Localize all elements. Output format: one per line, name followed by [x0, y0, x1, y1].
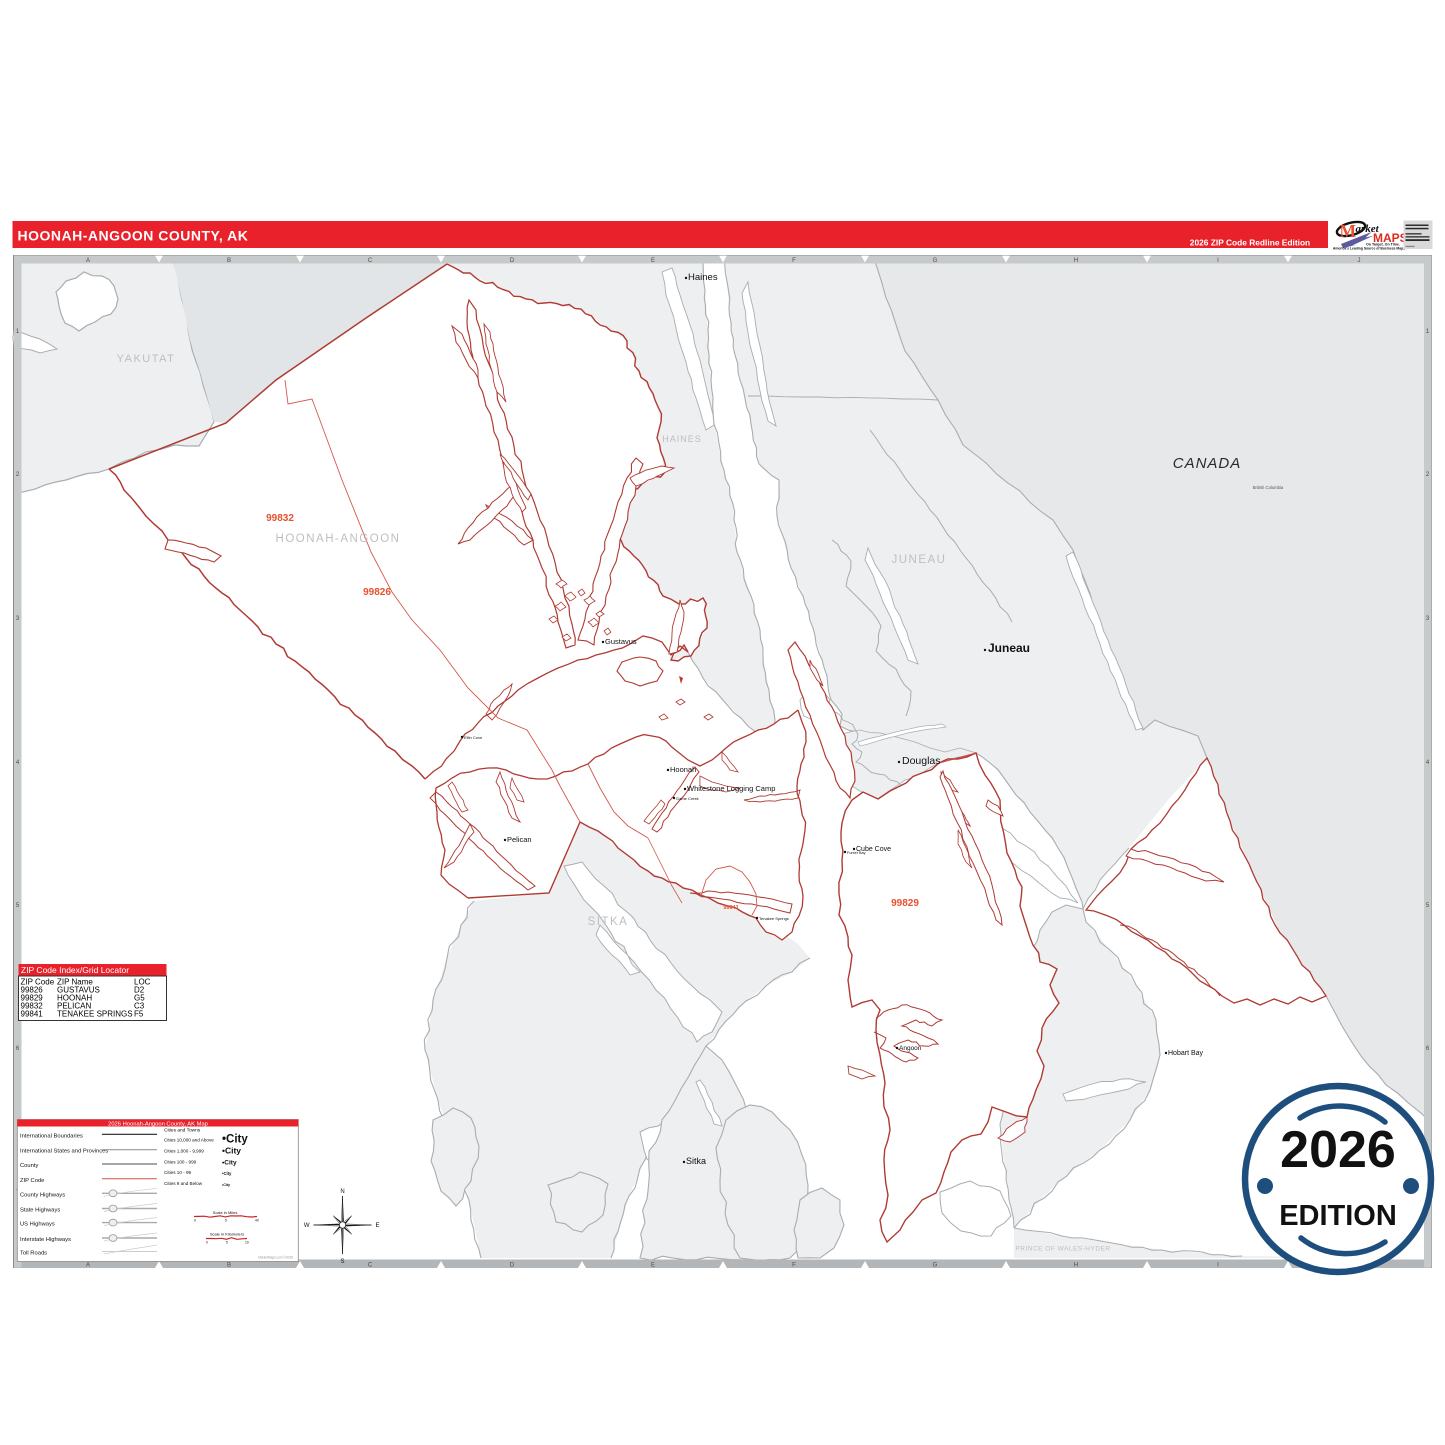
- svg-text:2026 Hoonah-Angoon County, AK: 2026 Hoonah-Angoon County, AK Map: [108, 1121, 208, 1127]
- svg-text:•City: •City: [222, 1160, 237, 1167]
- svg-text:A: A: [86, 1263, 90, 1269]
- svg-text:0: 0: [194, 1219, 196, 1223]
- svg-text:S: S: [340, 1259, 344, 1265]
- svg-text:F5: F5: [134, 1010, 144, 1019]
- svg-text:Pelican: Pelican: [507, 835, 532, 844]
- svg-text:G: G: [933, 1263, 938, 1269]
- svg-text:2026 ZIP Code Redline Edition: 2026 ZIP Code Redline Edition: [1190, 238, 1310, 248]
- svg-text:JUNEAU: JUNEAU: [891, 554, 946, 566]
- svg-text:B: B: [227, 1263, 231, 1269]
- svg-text:County Highways: County Highways: [20, 1192, 65, 1198]
- svg-text:Haines: Haines: [688, 272, 718, 283]
- svg-text:Elfin Cove: Elfin Cove: [464, 735, 483, 740]
- svg-text:Toll Roads: Toll Roads: [20, 1251, 47, 1257]
- svg-text:State Highways: State Highways: [20, 1208, 60, 1214]
- svg-text:40: 40: [255, 1219, 259, 1223]
- svg-text:10: 10: [245, 1241, 249, 1245]
- svg-text:EDITION: EDITION: [1279, 1200, 1397, 1232]
- svg-text:HOONAH-ANGOON COUNTY, AK: HOONAH-ANGOON COUNTY, AK: [18, 228, 249, 244]
- svg-text:Cities and Towns: Cities and Towns: [164, 1128, 201, 1134]
- svg-text:99841: 99841: [723, 905, 738, 911]
- svg-text:US Highways: US Highways: [20, 1222, 55, 1228]
- svg-text:CANADA: CANADA: [1173, 455, 1242, 472]
- svg-text:Cities 10 - 99: Cities 10 - 99: [164, 1170, 192, 1175]
- svg-text:HOONAH-ANGOON: HOONAH-ANGOON: [276, 533, 401, 545]
- svg-text:County: County: [20, 1163, 38, 1169]
- svg-text:F: F: [792, 1263, 796, 1269]
- svg-text:2026: 2026: [1280, 1121, 1396, 1179]
- svg-text:F: F: [792, 258, 796, 264]
- svg-text:Cities 1,000 - 9,999: Cities 1,000 - 9,999: [164, 1149, 204, 1154]
- svg-text:Sitka: Sitka: [686, 1156, 706, 1166]
- svg-text:E: E: [651, 1263, 655, 1269]
- svg-text:99826: 99826: [363, 587, 391, 598]
- svg-text:D: D: [510, 1263, 515, 1269]
- svg-text:N: N: [340, 1189, 344, 1195]
- svg-text:Cities 9 and Below: Cities 9 and Below: [164, 1181, 203, 1186]
- svg-text:Game Creek: Game Creek: [676, 796, 699, 801]
- svg-text:Cities 10,000 and Above: Cities 10,000 and Above: [164, 1138, 214, 1143]
- svg-text:D: D: [510, 258, 515, 264]
- svg-text:Douglas: Douglas: [902, 755, 941, 767]
- svg-text:Juneau: Juneau: [988, 641, 1030, 655]
- svg-text:Hoonah: Hoonah: [670, 765, 696, 774]
- svg-text:British Columbia: British Columbia: [1253, 485, 1284, 490]
- svg-text:C: C: [368, 1263, 373, 1269]
- svg-text:5: 5: [226, 1241, 228, 1245]
- svg-text:A: A: [86, 258, 90, 264]
- svg-text:Scale in Kilometers: Scale in Kilometers: [210, 1232, 244, 1237]
- svg-text:TENAKEE SPRINGS: TENAKEE SPRINGS: [57, 1010, 133, 1019]
- svg-text:Gustavus: Gustavus: [605, 637, 637, 646]
- svg-text:Tenakee Springs: Tenakee Springs: [759, 916, 789, 921]
- svg-text:J: J: [1358, 258, 1361, 264]
- svg-text:America's Leading Source of B: America's Leading Source of Business Map…: [1333, 247, 1405, 251]
- svg-text:G: G: [933, 258, 938, 264]
- svg-text:ZIP Code Index/Grid Locator: ZIP Code Index/Grid Locator: [21, 965, 129, 975]
- svg-text:E: E: [651, 258, 655, 264]
- svg-text:HAINES: HAINES: [662, 434, 702, 444]
- svg-text:C: C: [368, 258, 373, 264]
- svg-text:SITKA: SITKA: [588, 916, 629, 928]
- svg-text:Hobart Bay: Hobart Bay: [1168, 1050, 1204, 1057]
- svg-text:E: E: [376, 1223, 380, 1229]
- svg-text:PRINCE OF WALES-HYDER: PRINCE OF WALES-HYDER: [1015, 1246, 1110, 1253]
- svg-text:B: B: [227, 258, 231, 264]
- svg-text:Funter Bay: Funter Bay: [847, 851, 866, 855]
- svg-text:Whitestone Logging Camp: Whitestone Logging Camp: [687, 784, 775, 793]
- svg-text:International States and Provi: International States and Provinces: [20, 1149, 108, 1155]
- svg-text:99829: 99829: [891, 898, 919, 909]
- svg-text:•City: •City: [222, 1183, 230, 1187]
- svg-text:99832: 99832: [266, 513, 294, 524]
- svg-text:99841: 99841: [21, 1010, 44, 1019]
- svg-text:•City: •City: [222, 1171, 232, 1176]
- svg-text:Scale in Miles: Scale in Miles: [213, 1210, 238, 1215]
- svg-text:H: H: [1074, 1263, 1078, 1269]
- svg-text:5: 5: [225, 1219, 227, 1223]
- svg-text:Cities 100 - 999: Cities 100 - 999: [164, 1160, 197, 1165]
- svg-text:M: M: [1340, 221, 1357, 241]
- svg-text:•City: •City: [222, 1146, 241, 1156]
- svg-text:YAKUTAT: YAKUTAT: [117, 353, 176, 365]
- svg-text:Angoon: Angoon: [899, 1045, 922, 1052]
- svg-text:MarketMaps.com ©2026: MarketMaps.com ©2026: [258, 1256, 293, 1260]
- svg-text:H: H: [1074, 258, 1078, 264]
- svg-text:W: W: [304, 1223, 310, 1229]
- svg-text:Interstate Highways: Interstate Highways: [20, 1237, 71, 1243]
- svg-text:0: 0: [206, 1241, 208, 1245]
- svg-text:ZIP Code: ZIP Code: [20, 1178, 44, 1184]
- svg-text:International Boundaries: International Boundaries: [20, 1133, 83, 1139]
- svg-text:•City: •City: [222, 1134, 248, 1146]
